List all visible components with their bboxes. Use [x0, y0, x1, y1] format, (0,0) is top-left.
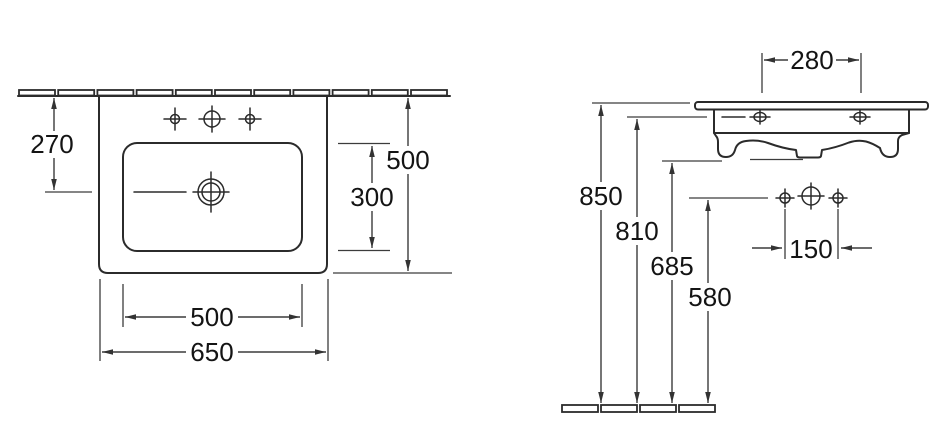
- drain-hole-center: [798, 183, 824, 209]
- basin-underside-profile: [714, 133, 909, 158]
- dim-label-850: 850: [579, 181, 622, 211]
- wall-tile: [58, 90, 94, 96]
- dim-label-685: 685: [650, 251, 693, 281]
- dim-label-270: 270: [30, 129, 73, 159]
- wall-tile: [333, 90, 369, 96]
- dim-label-300: 300: [350, 182, 393, 212]
- front-dimension-labels: 280 850 810 685 580 150: [577, 45, 836, 312]
- wall-tile: [411, 90, 447, 96]
- dim-label-650: 650: [190, 337, 233, 367]
- plan-view: 270 500 300 500 650: [18, 90, 452, 367]
- basin-outer-rim: [99, 96, 327, 273]
- dim-label-810: 810: [615, 216, 658, 246]
- wall-hatching: [18, 90, 450, 96]
- floor-tile: [679, 405, 715, 412]
- basin-bowl: [123, 143, 302, 251]
- dim-label-150: 150: [789, 234, 832, 264]
- dim-label-280: 280: [790, 45, 833, 75]
- wall-tile: [137, 90, 173, 96]
- front-view: 280 850 810 685 580 150: [562, 45, 928, 412]
- wall-tile: [176, 90, 212, 96]
- dim-label-500-depth: 500: [386, 145, 429, 175]
- washbasin-technical-drawing: 270 500 300 500 650: [0, 0, 944, 434]
- fixing-hole-right: [850, 110, 870, 124]
- plan-extension-lines: [45, 144, 452, 362]
- basin-body-front: [714, 109, 909, 133]
- wall-tile: [97, 90, 133, 96]
- tap-hole-marker-left: [164, 108, 186, 130]
- wall-tile: [293, 90, 329, 96]
- wall-tile: [372, 90, 408, 96]
- drawing-svg: 270 500 300 500 650: [0, 0, 944, 434]
- floor-tile: [601, 405, 637, 412]
- wall-tile: [19, 90, 55, 96]
- fixing-hole-left: [750, 110, 770, 124]
- basin-rim-slab: [695, 102, 928, 110]
- supply-hole-left: [776, 189, 794, 207]
- supply-hole-right: [829, 189, 847, 207]
- dim-label-580: 580: [688, 282, 731, 312]
- tap-hole-marker-right: [239, 108, 261, 130]
- wall-tile: [254, 90, 290, 96]
- dim-label-500-width: 500: [190, 302, 233, 332]
- wall-tile: [215, 90, 251, 96]
- floor-hatching: [562, 405, 715, 412]
- floor-tile: [562, 405, 598, 412]
- floor-tile: [640, 405, 676, 412]
- drain-symbol: [193, 172, 229, 212]
- tap-hole-marker-center: [199, 106, 225, 132]
